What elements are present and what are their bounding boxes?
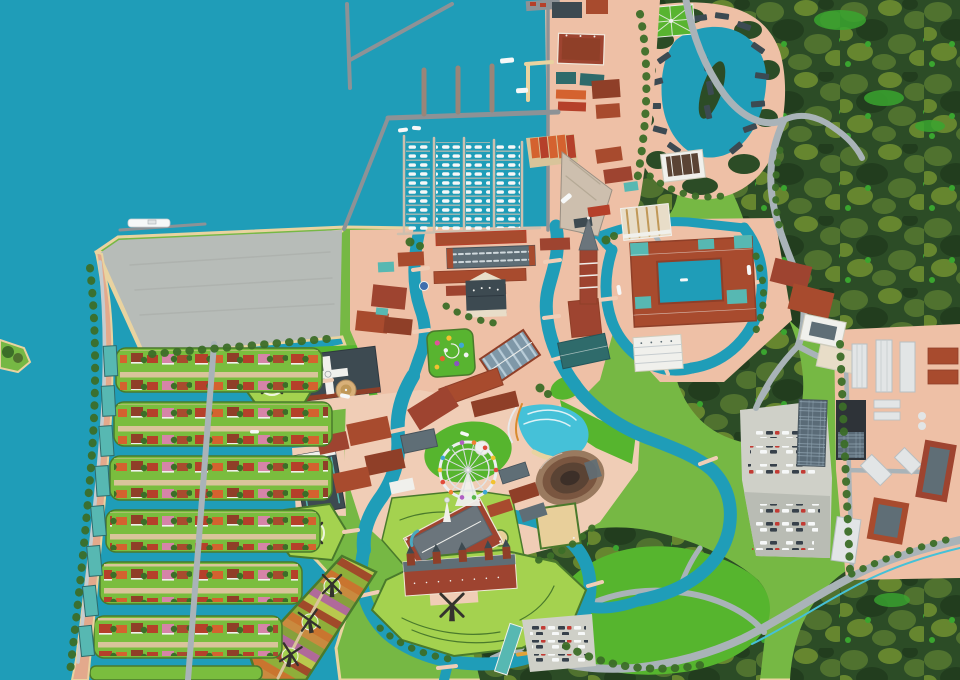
blue-pavilion (420, 282, 429, 291)
white-hall (633, 334, 683, 371)
island-row (106, 510, 320, 552)
island-row (90, 666, 262, 680)
lagoon-hall (660, 149, 705, 182)
resort-map-illustration (0, 0, 960, 680)
market-hall (447, 245, 536, 268)
island-row (116, 348, 322, 392)
flower-garden (426, 328, 475, 377)
canal-hotel (620, 204, 671, 241)
solar-array (797, 400, 827, 467)
island-row (114, 402, 332, 446)
island-row (100, 562, 302, 604)
small-parking-lot (495, 614, 596, 675)
docked-ship (128, 219, 170, 227)
harbor-hotel (558, 33, 605, 65)
map-stage (0, 0, 960, 680)
hotel-courtyard-complex (630, 235, 756, 327)
island-row (110, 456, 332, 500)
